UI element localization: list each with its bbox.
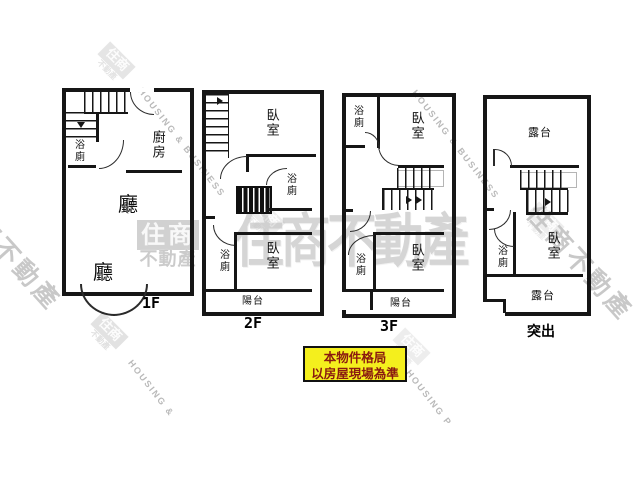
room-label-bedroom: 臥室 [545, 231, 559, 261]
room-label-living: 廳 [118, 188, 139, 217]
floor-label-rooftop: 突出 [527, 321, 555, 341]
wall [126, 170, 182, 173]
staircase-upper-run [520, 170, 568, 190]
wall [483, 274, 583, 277]
floor-plan-1f: 浴廁 廚房 廳 廳 1F [62, 88, 194, 296]
wall [96, 112, 99, 142]
wall [266, 208, 312, 211]
plan-notch [342, 292, 370, 310]
housing-watermark-bottom-right: HOUSING P [404, 368, 454, 428]
door-arc [130, 92, 154, 115]
wall [234, 232, 312, 235]
floor-plan-3f: 浴廁 臥室 浴廁 臥室 陽台 3F [342, 93, 456, 318]
door-arc [489, 210, 511, 230]
entry-door-arc [80, 284, 115, 316]
room-label-bedroom: 臥室 [409, 243, 423, 273]
room-label-living: 廳 [93, 256, 114, 285]
room-label-kitchen: 廚房 [150, 130, 164, 160]
stair-direction-arrow-icon [77, 122, 85, 132]
wall [246, 154, 316, 157]
floor-plan-rooftop: 露台 浴廁 臥室 露台 突出 [483, 95, 591, 316]
door-arc [378, 145, 399, 166]
door-arc [213, 225, 236, 246]
door-arc [220, 156, 247, 179]
door-arc [99, 140, 124, 169]
disclaimer-line1: 本物件格局 [305, 350, 405, 366]
stair-direction-arrow-icon [545, 198, 555, 206]
wall [346, 145, 365, 148]
door-arc [348, 235, 374, 255]
room-label-balcony: 陽台 [242, 292, 264, 307]
disclaimer-notice: 本物件格局 以房屋現場為準 [303, 346, 407, 382]
wall [234, 235, 237, 289]
floor-label-3f: 3F [380, 317, 398, 335]
door-arc [495, 149, 512, 166]
room-label-balcony: 陽台 [390, 294, 412, 309]
rotated-logo-watermark: 住商 不動產 [83, 311, 128, 356]
stair-direction-arrow-icon [217, 97, 227, 105]
stair-direction-arrow-icon [416, 196, 426, 204]
room-label-bath: 浴廁 [351, 105, 362, 129]
room-label-bedroom: 臥室 [409, 111, 423, 141]
floor-plan-2f: 臥室 浴廁 浴廁 臥室 陽台 2F [202, 90, 324, 316]
stair-direction-arrow-icon [406, 196, 416, 204]
room-label-bath: 浴廁 [284, 173, 295, 197]
room-label-bath: 浴廁 [217, 249, 228, 273]
wall [510, 165, 579, 168]
wall [526, 212, 568, 215]
room-label-bath: 浴廁 [72, 139, 83, 163]
disclaimer-line2: 以房屋現場為準 [305, 366, 405, 382]
wall [370, 292, 373, 310]
wall [206, 216, 215, 219]
plan-notch [483, 302, 505, 316]
room-label-bedroom: 臥室 [264, 108, 278, 138]
room-label-terrace: 露台 [531, 287, 555, 303]
room-label-bath: 浴廁 [353, 253, 364, 277]
staircase-upper-run [397, 168, 434, 188]
staircase-upper-run [84, 92, 128, 114]
wall [503, 299, 506, 313]
room-label-bath: 浴廁 [495, 245, 506, 269]
room-label-bedroom: 臥室 [264, 241, 278, 271]
wall [68, 165, 96, 168]
floorplan-image: 住商不動產 住商 不動產 住商 不動產 住商 不動產 住商 不動產 住商 不動產… [0, 0, 640, 480]
floor-label-1f: 1F [142, 294, 160, 312]
door-arc [350, 211, 371, 232]
brand-watermark-left: 住商不動產 [0, 186, 71, 318]
rotated-logo-watermark: 住商 不動產 [90, 41, 135, 86]
wall [373, 232, 444, 235]
room-label-terrace: 露台 [528, 124, 552, 140]
floor-label-2f: 2F [244, 314, 262, 332]
housing-watermark-bottom-left: HOUSING & [126, 358, 176, 419]
